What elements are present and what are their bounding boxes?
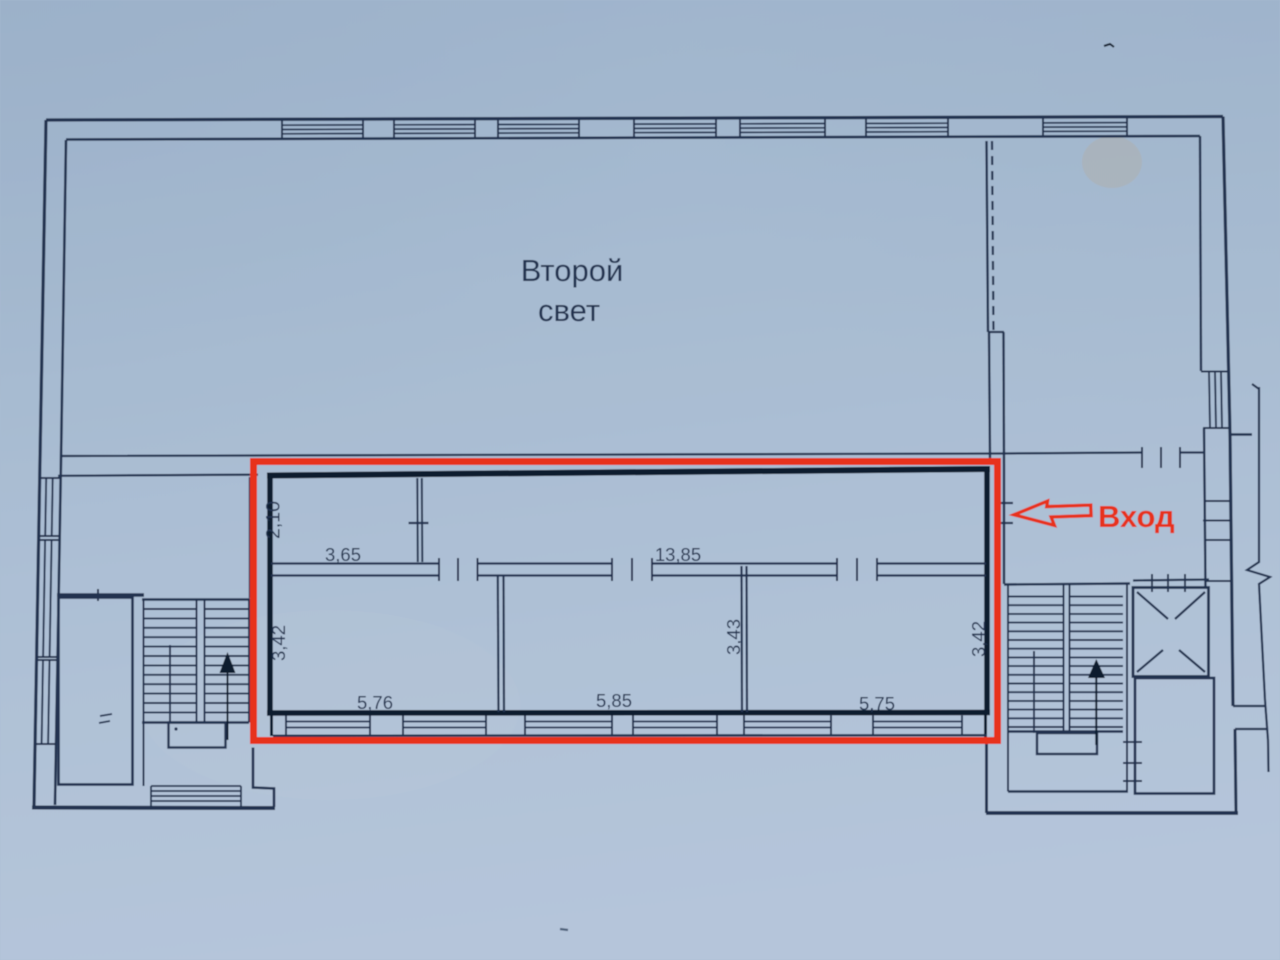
svg-text:Вход: Вход: [1098, 499, 1175, 534]
svg-text:3,42: 3,42: [268, 625, 289, 661]
svg-text:3,43: 3,43: [723, 619, 744, 655]
svg-text:5,85: 5,85: [596, 690, 632, 711]
svg-text:свет: свет: [538, 293, 600, 328]
svg-text:5,75: 5,75: [859, 693, 895, 714]
svg-text:Второй: Второй: [521, 253, 624, 288]
svg-text:13,85: 13,85: [655, 544, 701, 565]
svg-text:3,65: 3,65: [325, 544, 361, 565]
svg-text:5,76: 5,76: [357, 692, 393, 713]
svg-text:2,10: 2,10: [263, 501, 285, 539]
svg-text:3,42: 3,42: [968, 621, 989, 657]
